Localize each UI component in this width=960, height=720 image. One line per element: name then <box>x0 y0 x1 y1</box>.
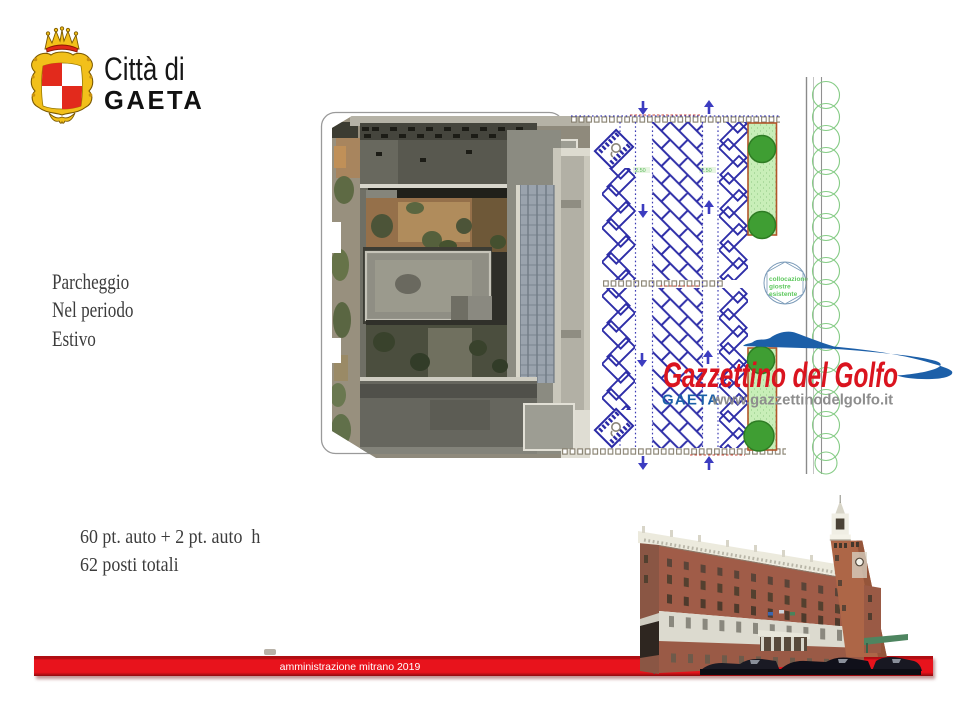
svg-text:collocazione: collocazione <box>769 276 808 283</box>
svg-text:esistente: esistente <box>769 291 798 298</box>
svg-text:Gazzettino del Golfo: Gazzettino del Golfo <box>663 356 898 395</box>
svg-text:giostre: giostre <box>769 284 791 291</box>
svg-text:2.50: 2.50 <box>635 168 646 174</box>
svg-text:GAETA: GAETA <box>662 392 719 409</box>
svg-text:www.gazzettinodelgolfo.it: www.gazzettinodelgolfo.it <box>711 393 893 409</box>
